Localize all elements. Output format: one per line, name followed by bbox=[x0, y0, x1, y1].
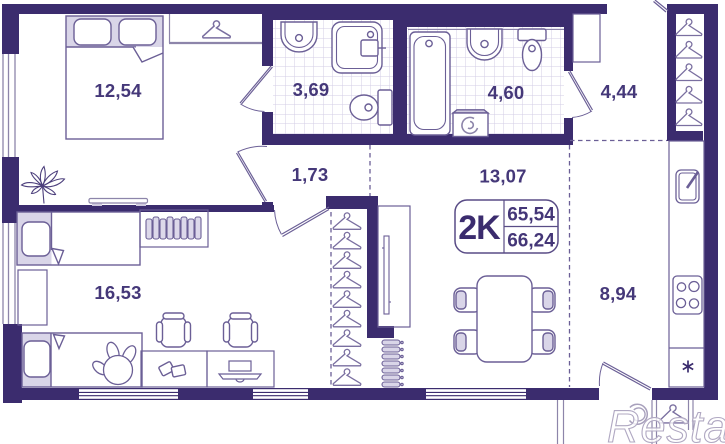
svg-text:8,94: 8,94 bbox=[600, 283, 637, 304]
svg-text:65,54: 65,54 bbox=[507, 205, 555, 226]
svg-text:12,54: 12,54 bbox=[94, 80, 142, 101]
svg-text:2K: 2K bbox=[458, 209, 501, 247]
svg-text:Restate: Restate bbox=[607, 401, 725, 444]
svg-text:16,53: 16,53 bbox=[94, 282, 141, 303]
svg-text:66,24: 66,24 bbox=[507, 231, 555, 252]
svg-text:4,60: 4,60 bbox=[488, 82, 525, 103]
svg-text:3,69: 3,69 bbox=[293, 79, 330, 100]
svg-text:4,44: 4,44 bbox=[601, 81, 638, 102]
svg-text:1,73: 1,73 bbox=[292, 164, 329, 185]
svg-text:13,07: 13,07 bbox=[479, 166, 526, 187]
